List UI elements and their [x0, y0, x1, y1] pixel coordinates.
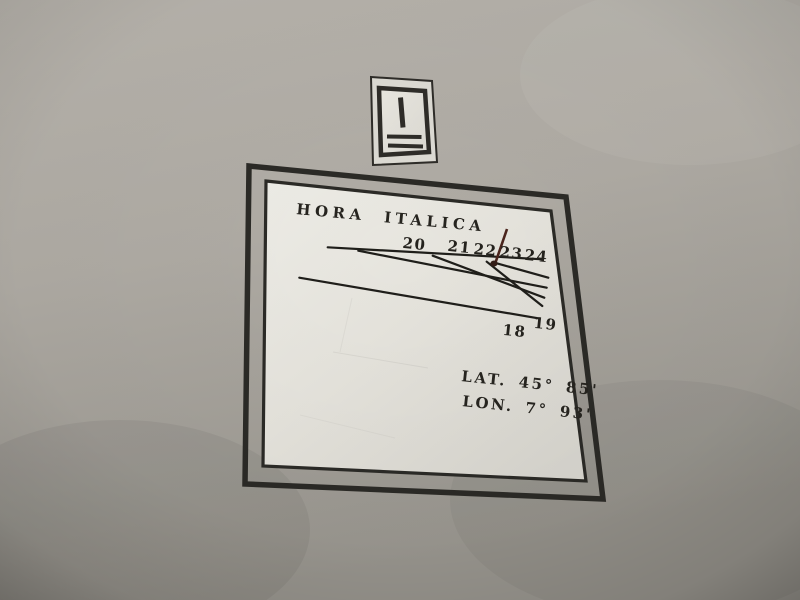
sundial-scene: HORA ITALICA 20 21 22 23 24 18 19 LAT. 4… [0, 0, 800, 600]
vignette-overlay [0, 0, 800, 600]
photo-sundial-wall: HORA ITALICA 20 21 22 23 24 18 19 LAT. 4… [0, 0, 800, 600]
